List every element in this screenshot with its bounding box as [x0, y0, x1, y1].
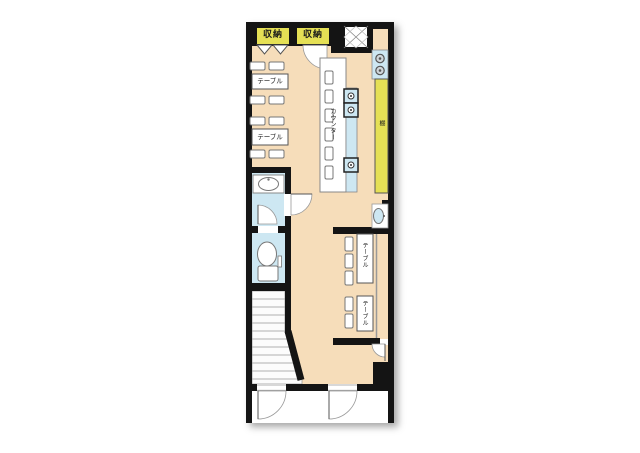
bathroom-right-wall	[285, 167, 291, 334]
sink-icon	[344, 89, 358, 103]
chair	[250, 96, 265, 104]
chair	[269, 117, 284, 125]
stool	[325, 71, 333, 84]
stove-icon	[372, 50, 388, 79]
hand-basin-icon	[372, 204, 388, 228]
chair	[250, 117, 265, 125]
chair	[345, 271, 353, 285]
chair	[269, 62, 284, 70]
floor-plan-drawing	[0, 0, 640, 453]
storage-right-label: 収納	[296, 31, 330, 40]
corner-wall-block	[373, 362, 390, 386]
counter-label: カウンター	[329, 108, 335, 141]
toilet-doorway	[258, 226, 278, 233]
sink-icon	[344, 103, 358, 117]
bathroom-top-wall	[246, 167, 291, 173]
storage-left-label: 収納	[256, 31, 290, 40]
chair	[269, 96, 284, 104]
chair	[250, 62, 265, 70]
chair	[269, 150, 284, 158]
chair	[345, 314, 353, 328]
stool	[325, 147, 333, 160]
toilet-bottom-wall	[246, 283, 291, 291]
chair	[345, 237, 353, 251]
table-right-2-label: テーブル	[361, 300, 367, 326]
chair	[345, 254, 353, 268]
table-right-1-label: テーブル	[361, 242, 367, 268]
stool	[325, 166, 333, 179]
table-left-2-label: テーブル	[252, 134, 288, 141]
pipe-shaft	[344, 26, 368, 48]
washbasin-icon	[253, 175, 284, 193]
sink-icon	[344, 158, 358, 172]
table-left-1-label: テーブル	[252, 78, 288, 85]
shelf	[375, 79, 388, 193]
shelf-label: 棚	[378, 120, 384, 127]
entrance-right-door-icon	[328, 384, 357, 419]
floor-plan: 収納 収納 テーブル テーブル カウンター 棚 テーブル テーブル	[0, 0, 640, 453]
chair	[250, 150, 265, 158]
stool	[325, 90, 333, 103]
chair	[345, 297, 353, 311]
entrance-left-door-icon	[257, 384, 286, 419]
